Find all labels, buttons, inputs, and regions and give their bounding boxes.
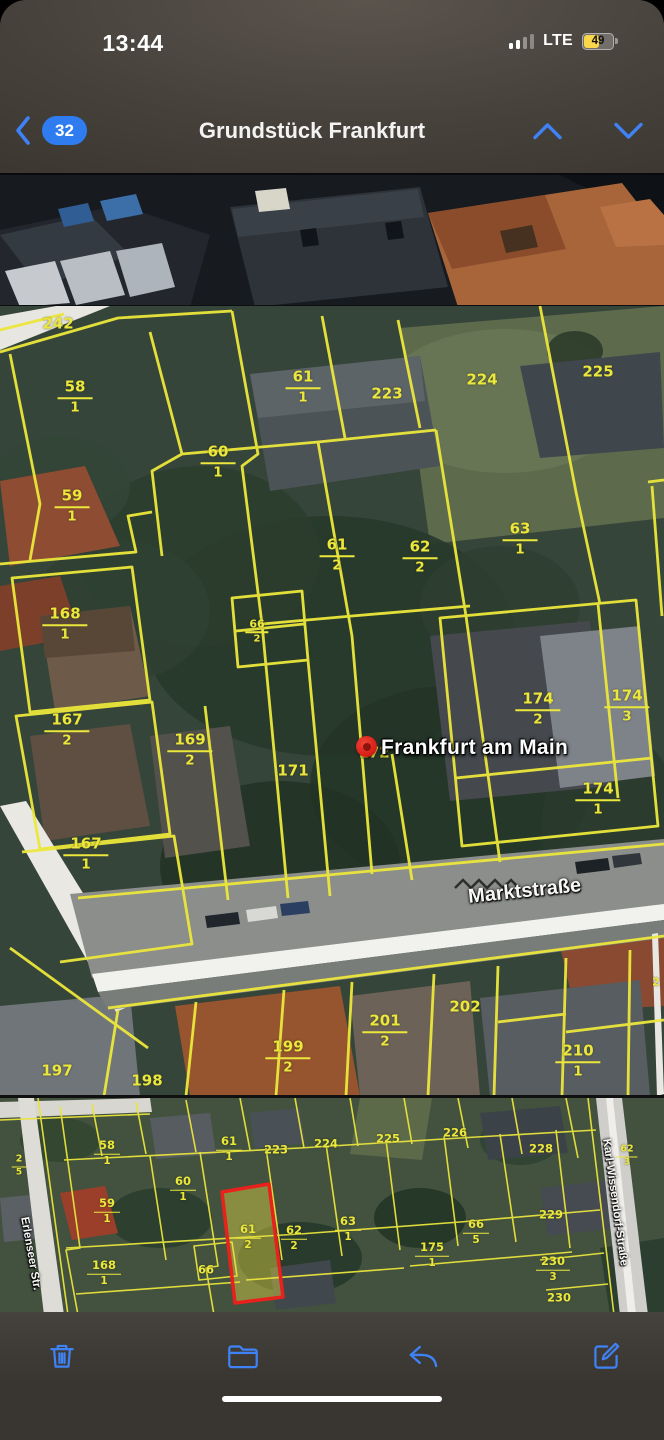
parcel-label: 242 [42,317,73,332]
parcel-label: 225 [582,365,613,380]
cadastral-map-image [0,306,664,1096]
reply-button[interactable] [402,1334,446,1378]
parcel-label: 2303 [541,1256,565,1283]
cellular-signal-icon [509,33,535,49]
move-to-folder-button[interactable] [221,1334,265,1378]
parcel-label: 66 [198,1264,214,1276]
parcel-label: 631 [510,521,531,557]
parcel-label: 1751 [420,1242,444,1269]
parcel-label: 1681 [92,1260,116,1287]
nav-bar: 32 Grundstück Frankfurt [0,108,664,164]
parcel-label: 623 [620,1145,633,1168]
parcel-label: 202 [449,1000,480,1015]
page-title: Grundstück Frankfurt [120,118,504,144]
parcel-label: 2 [652,977,660,988]
parcel-label: 591 [99,1198,115,1225]
home-indicator[interactable] [222,1396,442,1402]
parcel-label: 229 [539,1209,563,1221]
reply-arrow-icon [405,1338,443,1374]
city-label: Frankfurt am Main [381,736,568,760]
parcel-label: 2101 [562,1043,593,1079]
trash-icon [44,1338,80,1374]
compose-button[interactable] [584,1334,628,1378]
back-button[interactable]: 32 [12,114,87,147]
photo-strip-image [0,175,664,307]
parcel-label: 198 [131,1074,162,1089]
parcel-label: 1742 [522,691,553,727]
status-nav-area: 13:44 LTE 49 32 Grundstück Frank [0,0,664,173]
battery-icon: 49 [582,33,614,50]
location-pin-icon [356,736,377,757]
parcel-label: 223 [264,1144,288,1156]
parcel-label: 223 [371,387,402,402]
delete-button[interactable] [40,1334,84,1378]
back-chevron-icon[interactable] [12,114,34,147]
battery-nub [615,38,618,44]
parcel-label: 601 [208,444,229,480]
parcel-label: 25 [16,1155,23,1178]
previous-message-button[interactable] [530,118,565,144]
parcel-label: 1672 [51,712,82,748]
parcel-label: 601 [175,1176,191,1203]
parcel-label: 1743 [611,688,642,724]
parcel-label: 611 [221,1136,237,1163]
parcel-label: 1671 [70,836,101,872]
unread-count-badge[interactable]: 32 [42,116,87,145]
parcel-label: 228 [529,1143,553,1155]
parcel-label: 581 [99,1140,115,1167]
parcel-label: 224 [466,373,497,388]
parcel-label: 225 [376,1133,400,1145]
parcel-label: 224 [314,1138,338,1150]
parcel-label: 611 [293,369,314,405]
parcel-label: 662 [249,618,264,644]
network-type-label: LTE [543,32,573,50]
photo-strip[interactable] [0,173,664,307]
parcel-label: 622 [286,1225,302,1252]
folder-icon [224,1338,262,1374]
parcel-label: 612 [327,537,348,573]
parcel-label: 631 [340,1216,356,1243]
parcel-label: 197 [41,1064,72,1079]
parcel-label: 226 [443,1127,467,1139]
parcel-label: 665 [468,1219,484,1246]
parcel-label: 2012 [369,1013,400,1049]
cadastral-map-overview[interactable]: 5816112232242252262285916016126226316616… [0,1095,664,1315]
parcel-label: 1681 [49,606,80,642]
parcel-label: 622 [410,539,431,575]
parcel-label: 1741 [582,781,613,817]
status-bar: 13:44 LTE 49 [0,22,664,66]
parcel-label: 1992 [272,1039,303,1075]
parcel-label: 581 [65,379,86,415]
battery-percent: 49 [583,34,613,49]
cadastral-map-main[interactable]: 2425816112232242255916016126226311681662… [0,305,664,1096]
parcel-label: 591 [62,488,83,524]
mail-attachment-viewer: 13:44 LTE 49 32 Grundstück Frank [0,0,664,1440]
parcel-label: 1692 [174,732,205,768]
parcel-label: 230 [547,1292,571,1304]
parcel-label: 612 [240,1224,256,1251]
compose-icon [588,1338,624,1374]
parcel-label: 171 [277,764,308,779]
status-time: 13:44 [88,30,178,57]
next-message-button[interactable] [611,118,646,144]
bottom-toolbar [0,1312,664,1440]
